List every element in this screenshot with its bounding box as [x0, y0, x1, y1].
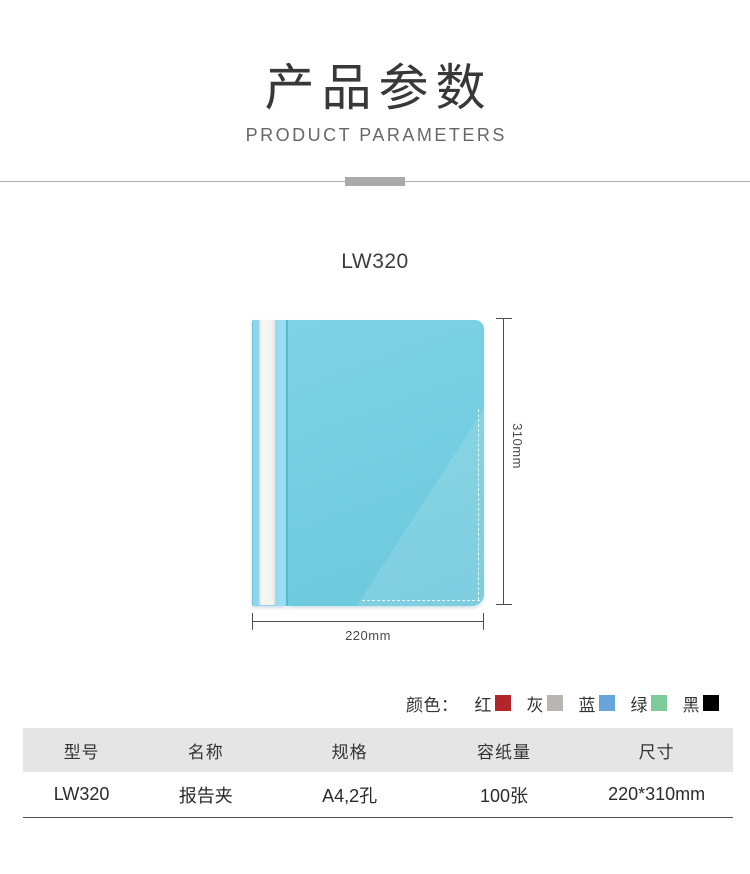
color-swatch-red — [495, 695, 511, 711]
color-name: 蓝 — [579, 691, 596, 716]
color-options-label: 颜色： — [406, 691, 459, 716]
color-name: 灰 — [527, 691, 544, 716]
width-dimension-label: 220mm — [252, 628, 484, 643]
height-dimension-cap-bottom — [496, 604, 512, 605]
color-swatch-black — [703, 695, 719, 711]
col-header-name: 名称 — [140, 728, 271, 772]
cell-capacity: 100张 — [428, 772, 581, 817]
height-dimension-label: 310mm — [509, 420, 525, 472]
model-number-label: LW320 — [0, 250, 750, 274]
product-folder-image — [252, 320, 484, 606]
color-options-row: 颜色： 红 灰 蓝 绿 黑 — [406, 693, 719, 713]
spec-table-header-row: 型号 名称 规格 容纸量 尺寸 — [23, 728, 733, 772]
product-parameters-page: 产品参数 PRODUCT PARAMETERS LW320 310mm 220m… — [0, 0, 750, 874]
color-option-red: 红 — [475, 691, 511, 716]
col-header-capacity: 容纸量 — [428, 728, 581, 772]
cell-name: 报告夹 — [140, 772, 271, 817]
spec-table: 型号 名称 规格 容纸量 尺寸 LW320 报告夹 A4,2孔 100张 220… — [23, 728, 733, 818]
header: 产品参数 PRODUCT PARAMETERS — [0, 58, 750, 146]
color-swatch-gray — [547, 695, 563, 711]
color-option-blue: 蓝 — [579, 691, 615, 716]
page-subtitle: PRODUCT PARAMETERS — [0, 125, 750, 146]
color-name: 红 — [475, 691, 492, 716]
page-title: 产品参数 — [0, 58, 750, 118]
col-header-model: 型号 — [23, 728, 140, 772]
folder-spine — [277, 320, 286, 606]
color-option-gray: 灰 — [527, 691, 563, 716]
color-name: 黑 — [683, 691, 700, 716]
cell-spec: A4,2孔 — [271, 772, 427, 817]
col-header-spec: 规格 — [271, 728, 427, 772]
color-name: 绿 — [631, 691, 648, 716]
table-row: LW320 报告夹 A4,2孔 100张 220*310mm — [23, 772, 733, 817]
folder-stitch-horizontal — [362, 600, 480, 601]
color-swatch-green — [651, 695, 667, 711]
folder-paper-strip — [259, 320, 276, 605]
height-dimension-cap-top — [496, 318, 512, 319]
col-header-size: 尺寸 — [580, 728, 733, 772]
color-option-black: 黑 — [683, 691, 719, 716]
cell-size: 220*310mm — [580, 772, 733, 817]
color-swatch-blue — [599, 695, 615, 711]
section-divider-bar — [345, 177, 405, 186]
folder-stitch-vertical — [478, 409, 479, 601]
cell-model: LW320 — [23, 772, 140, 817]
folder-pocket-highlight — [288, 320, 484, 606]
width-dimension-line — [252, 621, 484, 622]
height-dimension-line — [503, 318, 504, 605]
folder-cover — [288, 320, 484, 606]
color-option-green: 绿 — [631, 691, 667, 716]
